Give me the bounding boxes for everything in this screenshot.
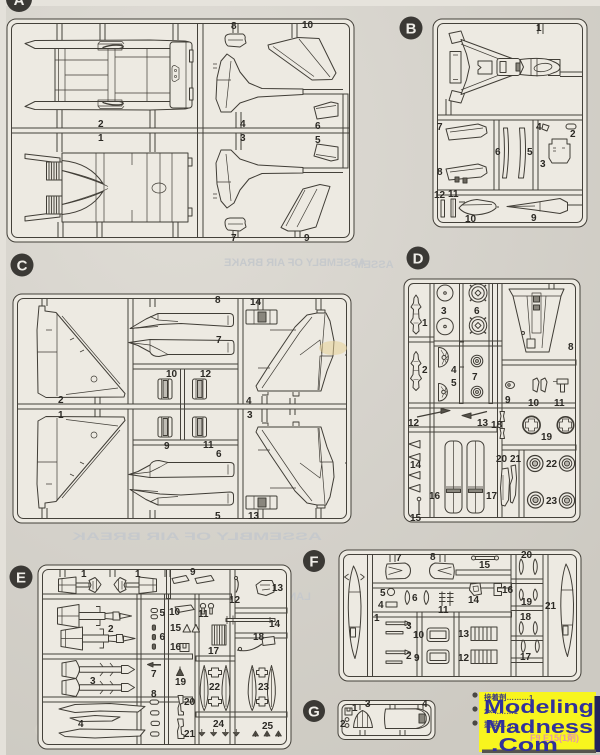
svg-text:22: 22	[546, 459, 558, 470]
svg-text:4: 4	[536, 122, 542, 133]
svg-text:7: 7	[396, 553, 402, 564]
svg-text:3: 3	[441, 306, 447, 317]
svg-text:5: 5	[380, 588, 386, 599]
svg-text:ASSEM: ASSEM	[354, 259, 393, 271]
svg-text:9: 9	[304, 233, 310, 244]
svg-text:2: 2	[108, 624, 114, 635]
svg-text:20: 20	[184, 697, 196, 708]
svg-text:19: 19	[521, 597, 533, 608]
svg-text:12: 12	[229, 595, 241, 606]
svg-text:21: 21	[184, 729, 196, 740]
svg-text:16: 16	[429, 491, 441, 502]
svg-text:19: 19	[541, 432, 553, 443]
svg-text:8: 8	[215, 295, 221, 306]
svg-text:3: 3	[247, 410, 253, 421]
svg-text:2: 2	[98, 119, 104, 130]
svg-text:17: 17	[486, 491, 498, 502]
svg-text:13: 13	[458, 629, 470, 640]
svg-text:6: 6	[495, 147, 501, 158]
svg-text:17: 17	[520, 652, 532, 663]
svg-text:ASSEMBLY OF AIR BRAKE: ASSEMBLY OF AIR BRAKE	[224, 257, 366, 269]
svg-text:10: 10	[528, 398, 540, 409]
svg-text:19: 19	[175, 677, 187, 688]
svg-text:5: 5	[315, 135, 321, 146]
svg-text:G: G	[308, 704, 320, 721]
svg-text:8: 8	[437, 167, 443, 178]
svg-text:1: 1	[374, 613, 380, 624]
svg-text:4: 4	[422, 699, 428, 710]
svg-text:22: 22	[209, 682, 221, 693]
svg-text:D: D	[413, 251, 424, 268]
svg-text:3: 3	[90, 676, 96, 687]
svg-text:5: 5	[451, 378, 457, 389]
svg-text:5: 5	[215, 511, 221, 522]
svg-text:12: 12	[434, 190, 446, 201]
svg-text:7: 7	[216, 335, 222, 346]
svg-text:2: 2	[58, 395, 64, 406]
svg-text:1: 1	[422, 318, 428, 329]
svg-text:6: 6	[315, 121, 321, 132]
svg-text:10: 10	[169, 607, 181, 618]
svg-text:14: 14	[250, 297, 262, 308]
svg-text:1: 1	[58, 410, 64, 421]
svg-text:6: 6	[474, 306, 480, 317]
svg-text:25: 25	[262, 721, 274, 732]
svg-text:9: 9	[190, 567, 196, 578]
svg-text:8: 8	[430, 552, 436, 563]
svg-text:14: 14	[468, 595, 480, 606]
svg-text:3: 3	[365, 699, 371, 710]
svg-text:23: 23	[546, 496, 558, 507]
svg-text:15: 15	[410, 513, 422, 524]
svg-text:11: 11	[438, 605, 449, 616]
svg-text:15: 15	[170, 623, 182, 634]
svg-text:10: 10	[465, 214, 477, 225]
svg-text:9: 9	[414, 653, 420, 664]
svg-text:.Com: .Com	[491, 735, 558, 755]
svg-text:1: 1	[98, 133, 104, 144]
svg-text:6: 6	[216, 449, 222, 460]
svg-text:4: 4	[78, 719, 84, 730]
svg-text:12: 12	[408, 418, 420, 429]
svg-text:7: 7	[437, 122, 443, 133]
svg-text:4: 4	[240, 119, 246, 130]
svg-text:15: 15	[479, 560, 491, 571]
svg-text:2: 2	[340, 719, 346, 730]
svg-text:3: 3	[540, 159, 546, 170]
svg-text:6: 6	[412, 593, 418, 604]
svg-text:3: 3	[240, 133, 246, 144]
svg-text:20: 20	[496, 454, 508, 465]
svg-text:11: 11	[203, 440, 214, 451]
svg-text:12: 12	[458, 653, 470, 664]
svg-text:1: 1	[135, 569, 141, 580]
svg-text:17: 17	[208, 646, 220, 657]
svg-text:13: 13	[248, 511, 260, 522]
svg-text:24: 24	[213, 719, 225, 730]
svg-text:16: 16	[502, 585, 514, 596]
svg-text:8: 8	[231, 21, 237, 32]
svg-text:2: 2	[570, 129, 576, 140]
svg-text:5: 5	[527, 147, 533, 158]
svg-text:E: E	[16, 570, 26, 587]
svg-text:14: 14	[269, 619, 281, 630]
svg-text:ASSEMBLY OF AIR BREAK: ASSEMBLY OF AIR BREAK	[72, 531, 322, 543]
svg-text:7: 7	[472, 372, 478, 383]
svg-text:8: 8	[568, 342, 574, 353]
svg-text:1: 1	[81, 569, 87, 580]
svg-text:2: 2	[422, 365, 428, 376]
svg-text:6: 6	[160, 632, 166, 643]
svg-text:4: 4	[246, 396, 252, 407]
svg-text:5: 5	[160, 608, 166, 619]
svg-text:10: 10	[166, 369, 178, 380]
svg-text:Madness: Madness	[485, 717, 593, 737]
svg-text:12: 12	[200, 369, 212, 380]
svg-text:4: 4	[378, 600, 384, 611]
svg-text:2: 2	[406, 651, 412, 662]
svg-text:20: 20	[521, 550, 533, 561]
svg-text:13: 13	[477, 418, 489, 429]
svg-text:11: 11	[448, 189, 459, 200]
svg-text:18: 18	[253, 632, 265, 643]
svg-text:8: 8	[151, 689, 157, 700]
svg-text:9: 9	[164, 441, 170, 452]
svg-text:11: 11	[198, 609, 209, 620]
svg-text:18: 18	[520, 612, 532, 623]
svg-text:F: F	[309, 554, 318, 571]
svg-text:21: 21	[510, 454, 522, 465]
svg-text:9: 9	[531, 213, 537, 224]
svg-text:11: 11	[554, 398, 565, 409]
svg-text:7: 7	[231, 233, 237, 244]
svg-text:1: 1	[536, 23, 542, 34]
svg-text:1: 1	[352, 703, 358, 714]
svg-text:23: 23	[258, 682, 270, 693]
svg-text:13: 13	[272, 583, 284, 594]
svg-text:Modeling: Modeling	[484, 697, 594, 717]
svg-text:18: 18	[491, 420, 503, 431]
svg-text:C: C	[17, 258, 28, 275]
svg-text:10: 10	[302, 20, 314, 31]
svg-text:21: 21	[545, 601, 557, 612]
svg-text:4: 4	[451, 365, 457, 376]
svg-text:9: 9	[505, 395, 511, 406]
svg-text:3: 3	[406, 621, 412, 632]
svg-text:A: A	[14, 0, 25, 9]
svg-text:B: B	[406, 21, 417, 38]
svg-text:16: 16	[170, 642, 182, 653]
svg-text:14: 14	[410, 460, 422, 471]
svg-text:10: 10	[413, 630, 425, 641]
svg-text:7: 7	[151, 669, 157, 680]
